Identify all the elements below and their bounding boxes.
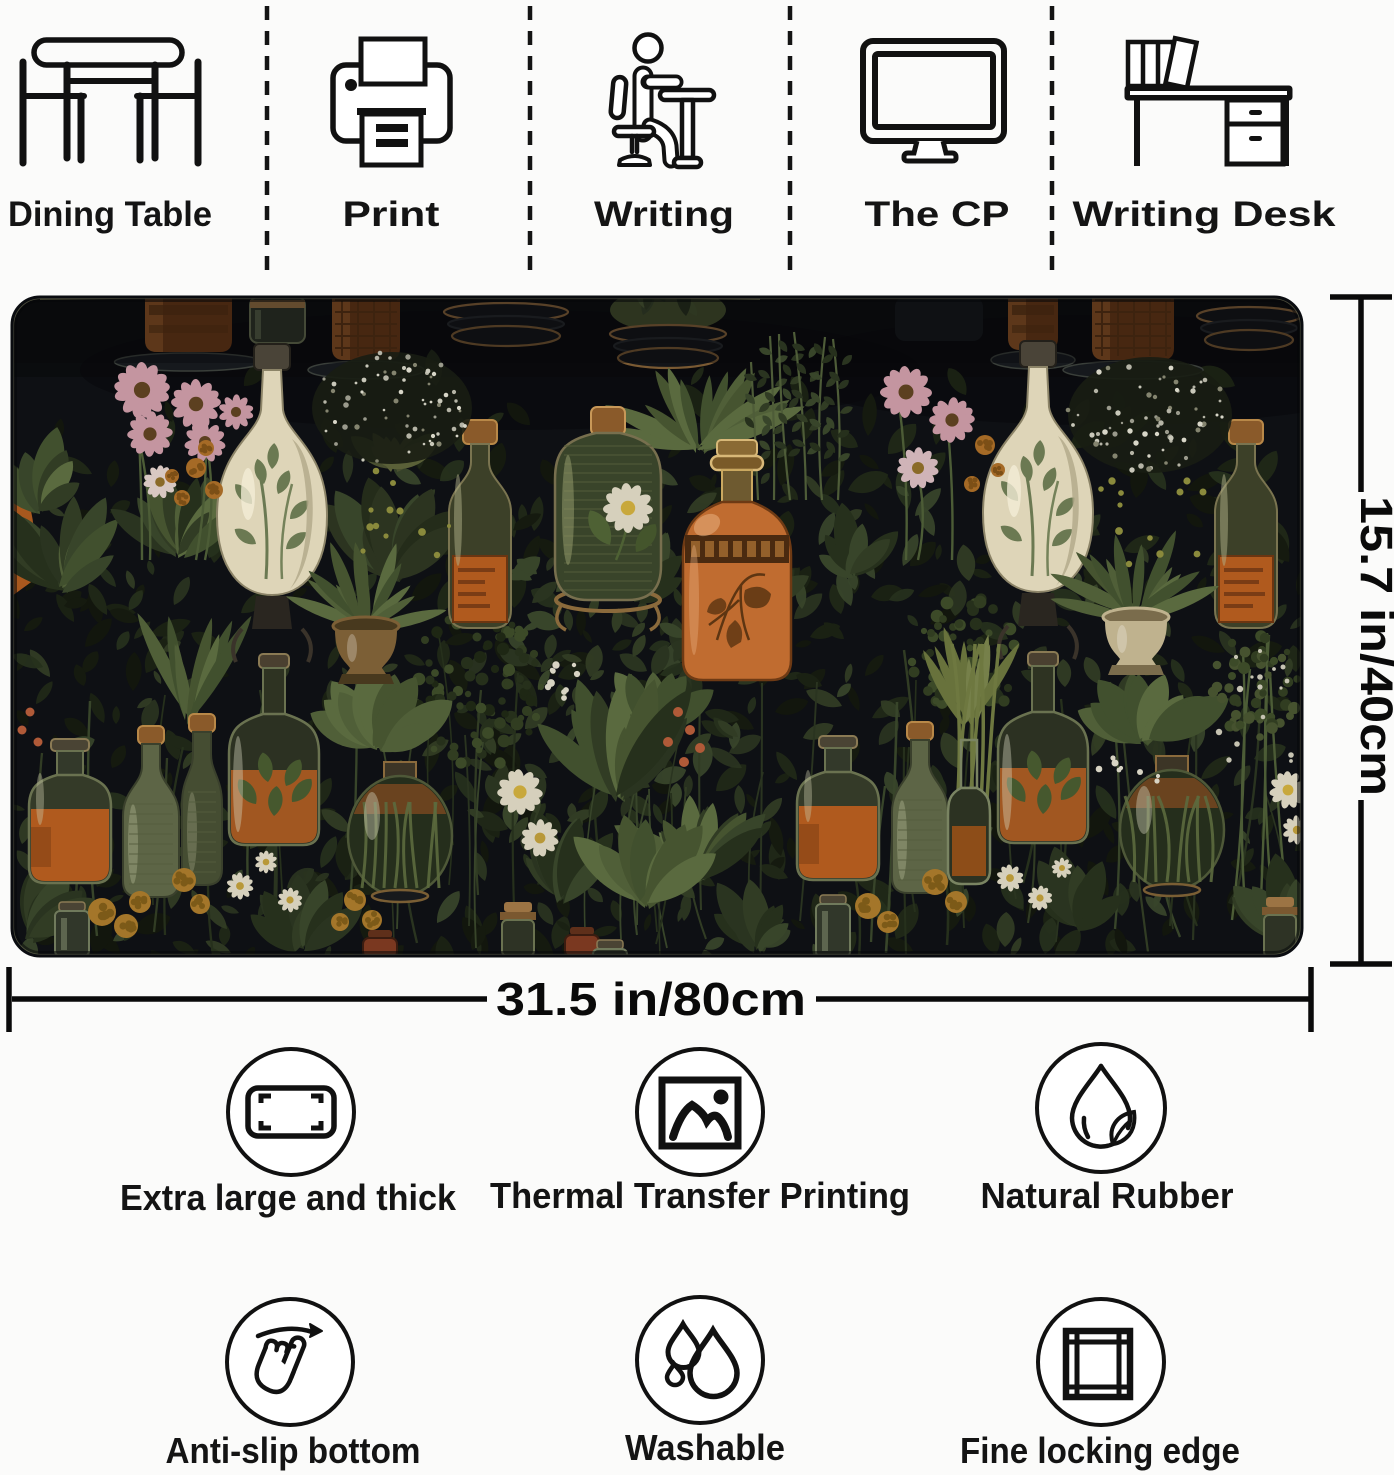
- svg-text:Print: Print: [343, 195, 440, 234]
- svg-text:Thermal Transfer Printing: Thermal Transfer Printing: [490, 1175, 910, 1216]
- svg-text:The CP: The CP: [865, 195, 1010, 234]
- svg-text:31.5 in/80cm: 31.5 in/80cm: [496, 973, 806, 1025]
- svg-text:15.7 in/40cm: 15.7 in/40cm: [1351, 496, 1394, 796]
- svg-text:Natural Rubber: Natural Rubber: [981, 1175, 1234, 1216]
- svg-text:Washable: Washable: [625, 1427, 785, 1468]
- svg-text:Anti-slip bottom: Anti-slip bottom: [166, 1430, 421, 1471]
- svg-text:Fine locking edge: Fine locking edge: [960, 1430, 1240, 1471]
- svg-text:Extra large and thick: Extra large and thick: [120, 1177, 457, 1218]
- svg-text:Dining Table: Dining Table: [8, 195, 212, 234]
- svg-text:Writing Desk: Writing Desk: [1073, 195, 1337, 234]
- svg-text:Writing: Writing: [594, 195, 734, 234]
